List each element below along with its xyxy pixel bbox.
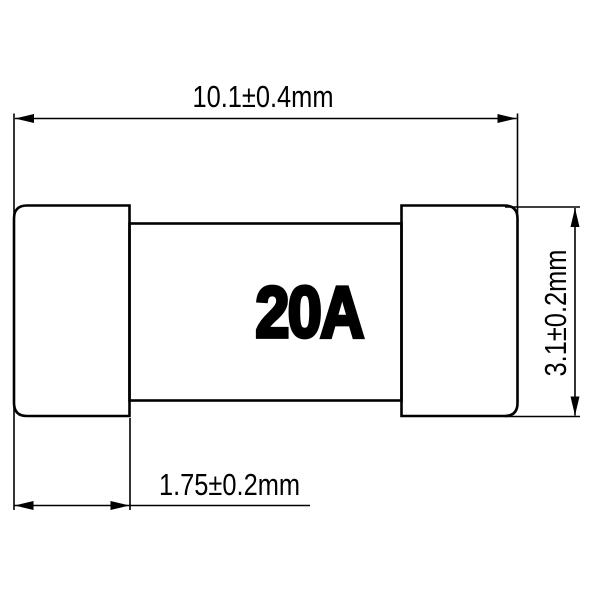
svg-text:3.1±0.2mm: 3.1±0.2mm (539, 250, 574, 377)
svg-text:10.1±0.4mm: 10.1±0.4mm (192, 80, 333, 115)
svg-text:20A: 20A (255, 273, 363, 353)
svg-text:1.75±0.2mm: 1.75±0.2mm (159, 468, 300, 503)
